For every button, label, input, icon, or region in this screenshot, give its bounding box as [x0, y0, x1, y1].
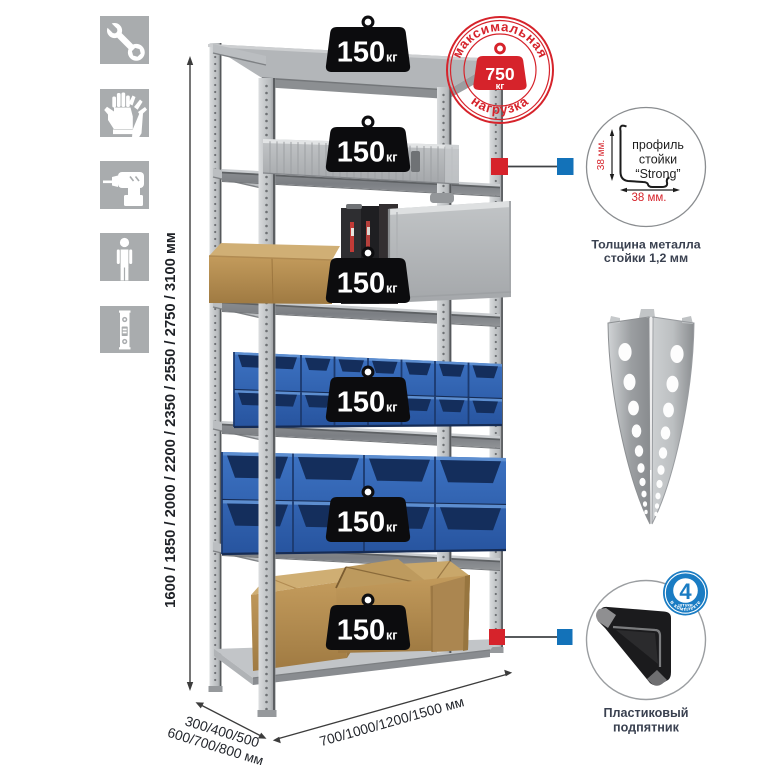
svg-text:“Strong”: “Strong” — [635, 167, 680, 181]
svg-text:Пластиковый: Пластиковый — [603, 706, 688, 720]
svg-text:кг: кг — [496, 81, 505, 92]
svg-text:38 мм.: 38 мм. — [632, 192, 667, 204]
svg-text:стойки 1,2 мм: стойки 1,2 мм — [604, 251, 688, 265]
svg-text:38 мм.: 38 мм. — [596, 140, 607, 170]
svg-text:профиль: профиль — [632, 138, 684, 152]
svg-text:подпятник: подпятник — [613, 721, 680, 735]
svg-text:Толщина металла: Толщина металла — [591, 238, 700, 252]
svg-text:стойки: стойки — [639, 153, 677, 167]
svg-text:1600 / 1850 / 2000 / 2200 / 23: 1600 / 1850 / 2000 / 2200 / 2350 / 2550 … — [163, 232, 179, 608]
svg-text:4: 4 — [679, 579, 692, 604]
